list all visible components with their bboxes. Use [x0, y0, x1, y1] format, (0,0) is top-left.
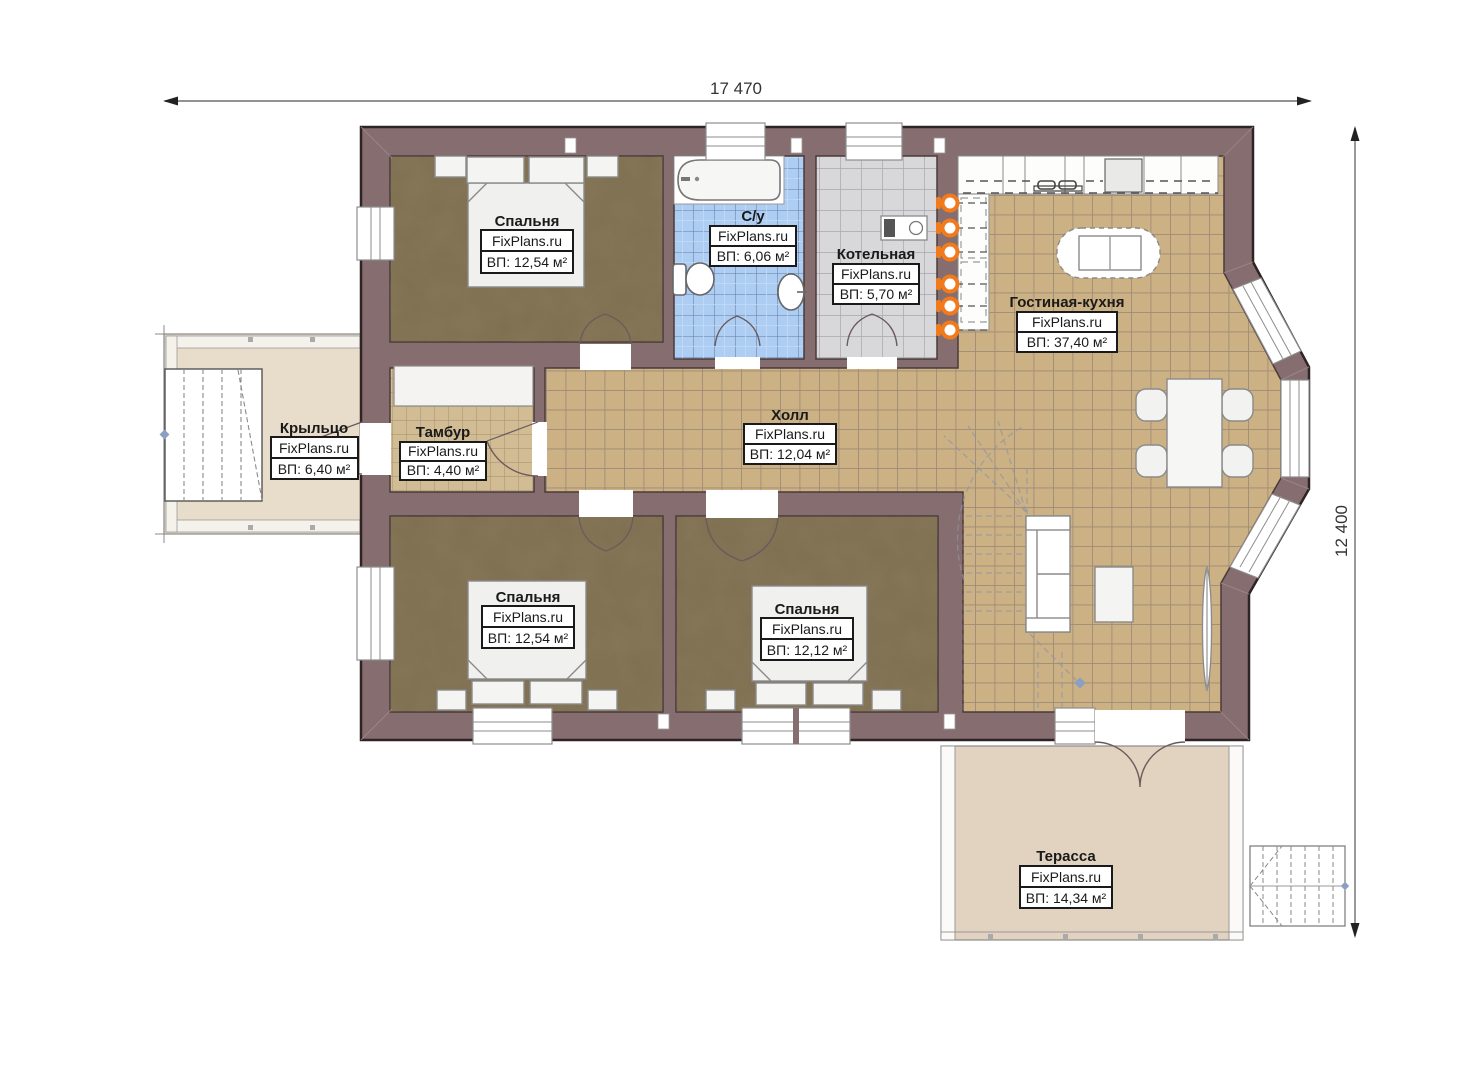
svg-text:FixPlans.ru: FixPlans.ru — [493, 609, 563, 625]
svg-text:Холл: Холл — [771, 407, 809, 424]
svg-text:Терасса: Терасса — [1036, 848, 1096, 865]
svg-text:12 400: 12 400 — [1332, 505, 1351, 557]
svg-text:Котельная: Котельная — [837, 246, 916, 263]
svg-text:С/у: С/у — [741, 208, 765, 225]
svg-text:FixPlans.ru: FixPlans.ru — [755, 426, 825, 442]
svg-text:FixPlans.ru: FixPlans.ru — [772, 621, 842, 637]
svg-text:FixPlans.ru: FixPlans.ru — [1032, 314, 1102, 330]
svg-text:FixPlans.ru: FixPlans.ru — [1031, 869, 1101, 885]
svg-text:ВП: 12,12 м²: ВП: 12,12 м² — [767, 642, 848, 658]
svg-text:Тамбур: Тамбур — [416, 424, 470, 441]
svg-text:FixPlans.ru: FixPlans.ru — [279, 440, 349, 456]
svg-text:Спальня: Спальня — [496, 589, 561, 606]
svg-text:ВП: 6,40 м²: ВП: 6,40 м² — [278, 461, 351, 477]
svg-text:ВП: 14,34 м²: ВП: 14,34 м² — [1026, 890, 1107, 906]
svg-text:Спальня: Спальня — [495, 213, 560, 230]
svg-text:ВП: 12,04 м²: ВП: 12,04 м² — [750, 446, 831, 462]
svg-text:FixPlans.ru: FixPlans.ru — [841, 266, 911, 282]
svg-text:ВП: 6,06 м²: ВП: 6,06 м² — [717, 248, 790, 264]
svg-text:Крыльцо: Крыльцо — [280, 420, 348, 437]
svg-text:FixPlans.ru: FixPlans.ru — [718, 228, 788, 244]
svg-text:FixPlans.ru: FixPlans.ru — [408, 443, 478, 459]
svg-text:ВП: 5,70 м²: ВП: 5,70 м² — [840, 286, 913, 302]
svg-text:Спальня: Спальня — [775, 601, 840, 618]
svg-text:FixPlans.ru: FixPlans.ru — [492, 233, 562, 249]
svg-text:Гостиная-кухня: Гостиная-кухня — [1010, 294, 1125, 311]
svg-text:ВП: 12,54 м²: ВП: 12,54 м² — [487, 254, 568, 270]
svg-text:ВП: 12,54 м²: ВП: 12,54 м² — [488, 630, 569, 646]
svg-text:ВП: 4,40 м²: ВП: 4,40 м² — [407, 462, 480, 478]
svg-text:17 470: 17 470 — [710, 79, 762, 98]
svg-text:ВП: 37,40 м²: ВП: 37,40 м² — [1027, 334, 1108, 350]
